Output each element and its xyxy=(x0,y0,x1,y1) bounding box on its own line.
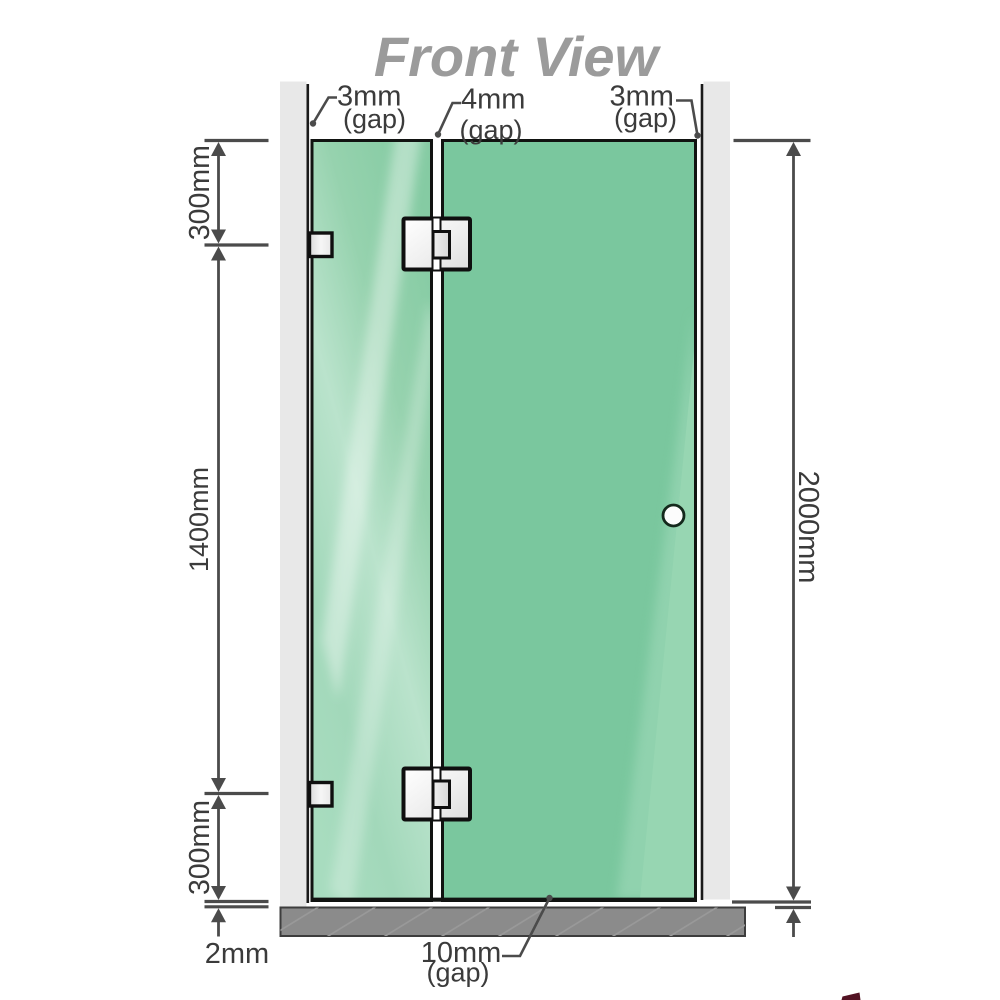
svg-text:2000mm: 2000mm xyxy=(792,471,824,584)
svg-text:(gap): (gap) xyxy=(614,103,677,133)
svg-text:(gap): (gap) xyxy=(343,104,406,134)
svg-text:300mm: 300mm xyxy=(184,145,216,240)
svg-text:300mm: 300mm xyxy=(184,800,216,895)
svg-text:1400mm: 1400mm xyxy=(184,467,214,572)
svg-text:Front View: Front View xyxy=(374,25,662,88)
svg-text:4mm: 4mm xyxy=(461,84,525,116)
svg-text:(gap): (gap) xyxy=(426,958,489,988)
svg-text:2mm: 2mm xyxy=(205,938,269,970)
svg-text:(gap): (gap) xyxy=(459,115,522,145)
